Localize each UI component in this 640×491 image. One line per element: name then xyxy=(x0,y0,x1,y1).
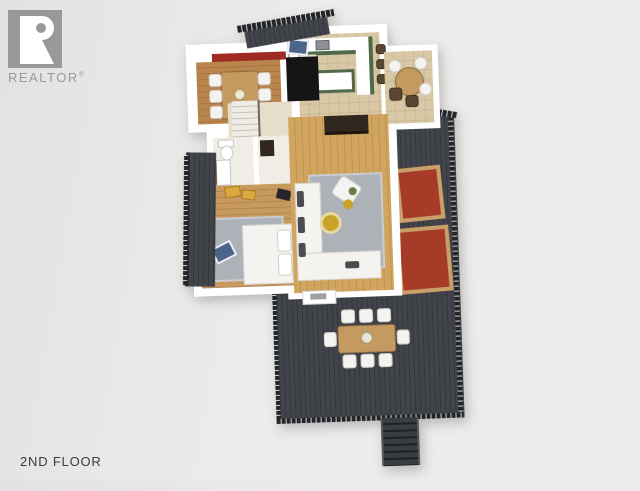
bed-pillow xyxy=(278,253,293,275)
outdoor-chair xyxy=(324,332,338,347)
throw-pillow xyxy=(345,261,359,268)
outdoor-chair xyxy=(360,354,374,368)
dining-chair xyxy=(258,88,271,101)
throw-pillow xyxy=(298,217,306,233)
outdoor-chair xyxy=(397,329,411,344)
dining-chair xyxy=(208,74,221,87)
floorplan-scene xyxy=(0,0,640,491)
stairwell-opening xyxy=(286,56,320,101)
outdoor-chair xyxy=(341,309,355,323)
closet-wardrobe xyxy=(260,140,275,156)
outdoor-chair xyxy=(359,309,373,323)
registered-trademark-symbol: ® xyxy=(79,72,86,79)
nook-chair-dark xyxy=(405,95,418,107)
side-balcony-deck xyxy=(185,152,216,286)
outdoor-chair xyxy=(377,308,391,322)
kitchen-counter-right xyxy=(355,36,374,95)
floor-label: 2ND FLOOR xyxy=(20,454,102,469)
screenshot-root: { "watermark": { "logo_text": "REALTOR",… xyxy=(0,0,640,480)
fireplace-insert xyxy=(310,293,326,300)
outdoor-chair xyxy=(342,354,356,368)
kitchen-sink xyxy=(315,40,329,50)
realtor-logo-text: REALTOR® xyxy=(8,70,68,85)
bed-pillow xyxy=(277,229,292,251)
bedroom-bench xyxy=(241,189,256,201)
deck-rug-red-2 xyxy=(394,225,454,295)
realtor-logo: REALTOR® xyxy=(8,10,68,85)
throw-pillow xyxy=(298,243,305,257)
nook-chair-dark xyxy=(389,87,402,100)
dining-chair xyxy=(257,72,270,85)
throw-pillow xyxy=(297,191,305,207)
deck-rug-red-1 xyxy=(394,165,445,224)
piano-console xyxy=(324,115,369,136)
realtor-logo-icon xyxy=(8,10,62,68)
deck-staircase xyxy=(381,417,421,466)
outdoor-chair xyxy=(378,353,392,367)
realtor-r-glyph xyxy=(8,10,62,68)
dining-chair xyxy=(209,90,222,103)
sectional-sofa-bottom xyxy=(297,250,382,281)
dining-chair xyxy=(210,106,223,119)
bathroom-vanity xyxy=(213,159,231,186)
